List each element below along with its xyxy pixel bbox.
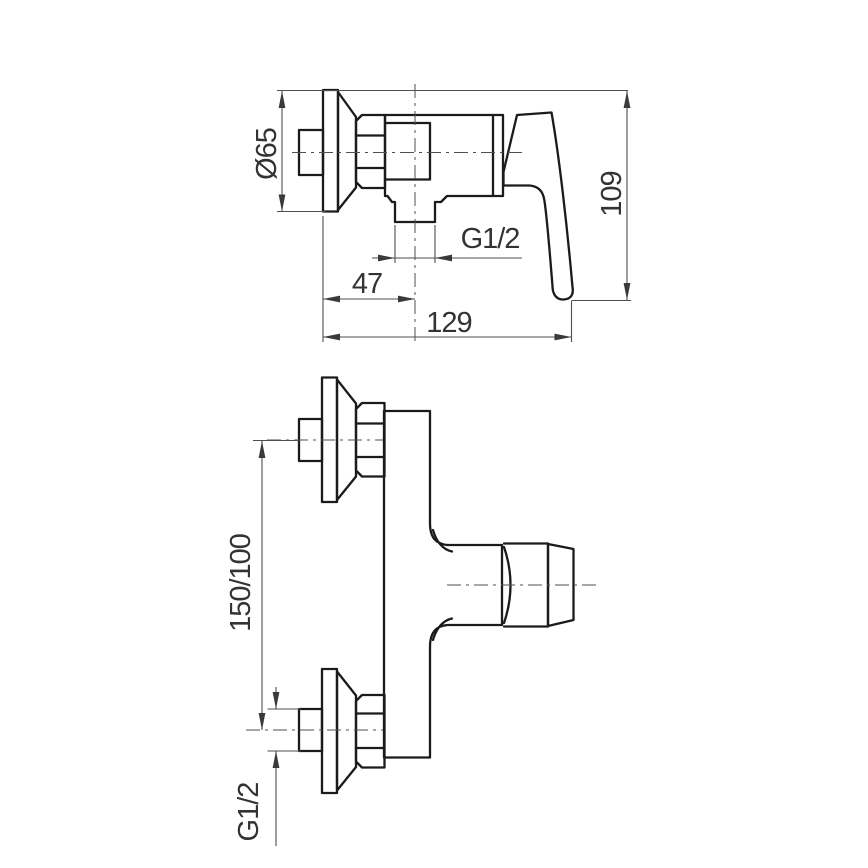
dim-overall-depth: 129 — [426, 307, 471, 339]
side-handle-lever — [504, 113, 573, 300]
side-union-nut-facets — [356, 136, 385, 169]
front-lower-flange-cone — [337, 672, 356, 791]
dim-flange-diameter: Ø65 — [251, 128, 283, 180]
side-cartridge-outline — [385, 123, 430, 180]
side-view: Ø65 109 G1/2 47 129 — [251, 84, 631, 342]
front-lower-flange-plate — [322, 669, 337, 793]
front-lower-union-nut — [356, 695, 385, 768]
front-view: 150/100 G1/2 — [225, 378, 601, 847]
dim-connection-thread: G1/2 — [233, 783, 265, 842]
front-body — [384, 411, 502, 758]
side-dimension-lines — [277, 91, 631, 343]
dim-outlet-thread: G1/2 — [461, 223, 520, 255]
side-dimension-arrows — [279, 91, 631, 340]
side-valve-body — [385, 115, 503, 222]
side-flange-plate — [323, 90, 338, 212]
side-union-nut — [356, 115, 385, 188]
dim-outlet-offset: 47 — [352, 268, 382, 300]
shower-mixer-drawing: Ø65 109 G1/2 47 129 — [0, 0, 868, 868]
technical-drawing-page: Ø65 109 G1/2 47 129 — [0, 0, 868, 868]
front-lower-nut-facets — [356, 714, 385, 749]
dim-overall-height: 109 — [596, 171, 628, 216]
dim-connection-centers: 150/100 — [225, 534, 257, 632]
side-flange-cone — [338, 92, 356, 210]
